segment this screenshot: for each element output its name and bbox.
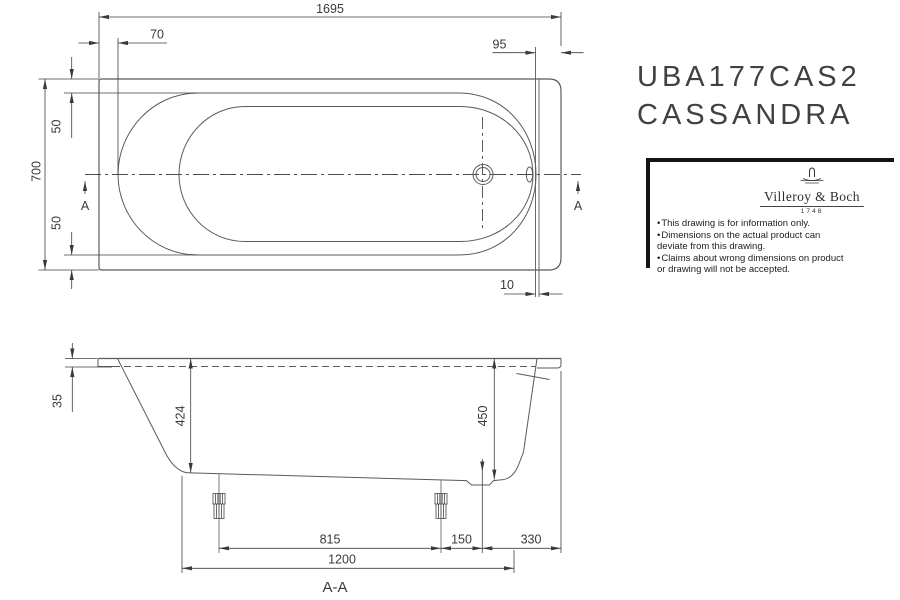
dim-150-label: 150 (451, 533, 472, 547)
section-marker-right: A (574, 181, 583, 213)
note-item: Dimensions on the actual product can dev… (657, 230, 849, 253)
manufacturer-info-box: Villeroy & Boch 1748 This drawing is for… (646, 158, 894, 268)
dim-815: 815 (219, 533, 441, 549)
rim-left-cap (98, 359, 113, 367)
dim-1200-label: 1200 (328, 553, 356, 567)
adjustable-foot-left (213, 474, 225, 553)
villeroy-boch-logo-icon (792, 166, 832, 188)
note-item: This drawing is for information only. (657, 218, 849, 230)
brand-block: Villeroy & Boch 1748 (717, 166, 900, 215)
dim-330-label: 330 (521, 533, 542, 547)
technical-drawing: 1695 70 95 700 (0, 0, 900, 600)
overflow-tick (517, 374, 550, 380)
top-view-dimensions: 1695 70 95 700 (30, 2, 584, 294)
dim-70-label: 70 (150, 28, 164, 42)
section-letter-left: A (81, 199, 90, 213)
dim-35-label: 35 (51, 394, 65, 408)
side-view (98, 359, 561, 554)
product-name: CASSANDRA (637, 96, 895, 134)
dim-10: 10 (500, 278, 562, 294)
dim-50-top-label: 50 (50, 120, 64, 134)
side-view-dimensions: 35 424 450 815 1 (51, 343, 562, 596)
dim-95: 95 (493, 38, 584, 53)
tub-floor-outline (179, 107, 533, 242)
section-title: A-A (322, 579, 347, 596)
dim-50-bottom-label: 50 (50, 216, 64, 230)
rim-right-cap (537, 359, 561, 369)
note-item: Claims about wrong dimensions on product… (657, 253, 849, 276)
dim-450: 450 (476, 359, 494, 480)
dim-424: 424 (174, 359, 191, 473)
section-marker-left: A (81, 181, 90, 213)
top-view (85, 47, 581, 297)
dim-50-top: 50 (50, 57, 199, 138)
dim-1200: 1200 (182, 476, 514, 573)
product-code: UBA177CAS2 (637, 58, 895, 96)
dim-70: 70 (79, 28, 168, 175)
adjustable-foot-right (435, 481, 447, 554)
brand-year: 1748 (717, 208, 900, 215)
dim-815-label: 815 (320, 533, 341, 547)
dim-150: 150 (441, 533, 482, 549)
dim-450-label: 450 (476, 406, 490, 427)
dim-424-label: 424 (174, 406, 188, 427)
title-block: UBA177CAS2 CASSANDRA (637, 58, 895, 134)
dim-700-label: 700 (30, 161, 44, 182)
section-letter-right: A (574, 199, 583, 213)
dim-35: 35 (51, 343, 113, 412)
dim-95-label: 95 (493, 38, 507, 52)
dim-1695-label: 1695 (316, 2, 344, 16)
brand-name: Villeroy & Boch (760, 189, 864, 207)
dim-10-label: 10 (500, 278, 514, 292)
disclaimer-notes: This drawing is for information only. Di… (657, 218, 849, 276)
